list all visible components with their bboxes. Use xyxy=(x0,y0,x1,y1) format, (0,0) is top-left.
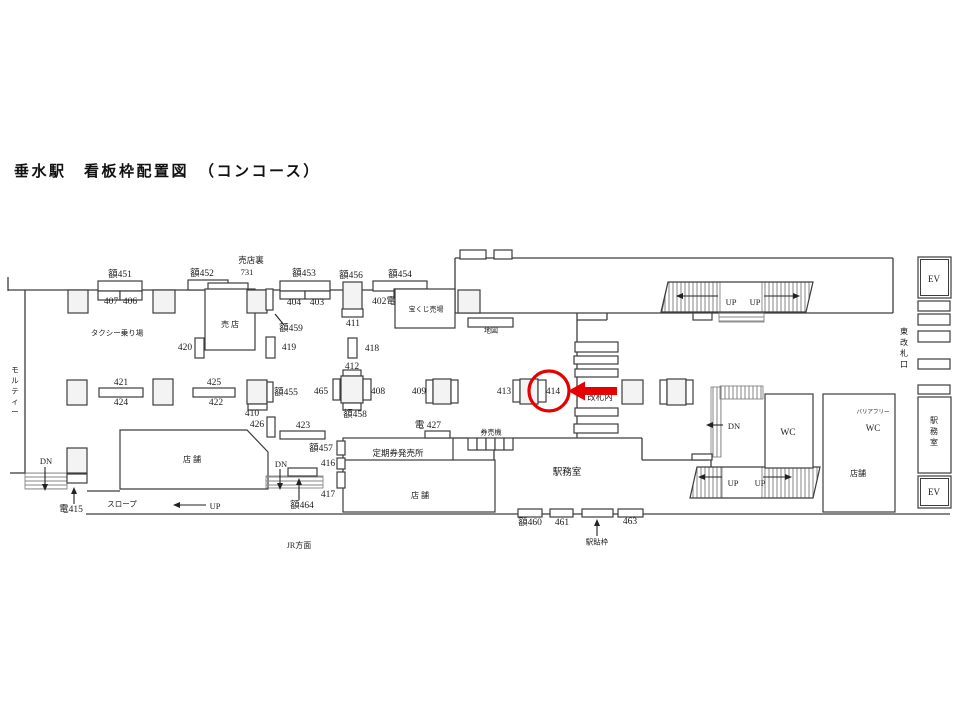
pillar-mid-2 xyxy=(153,379,173,405)
frame-453 xyxy=(280,281,330,291)
direction-arrow-head xyxy=(173,502,180,508)
area-label: DN xyxy=(275,459,287,469)
stair-bar-4 xyxy=(575,408,618,416)
area-label: 410 xyxy=(245,409,260,419)
area-label: JR方面 xyxy=(287,540,311,550)
stair-bar-3 xyxy=(575,369,618,377)
gate-bar-4 xyxy=(918,359,950,369)
area-label: 424 xyxy=(114,398,129,408)
area-label: DN xyxy=(728,421,740,431)
under-band-tab xyxy=(693,313,712,320)
area-label: 電 427 xyxy=(415,420,441,431)
shop-center xyxy=(343,460,495,512)
area-label: 改 xyxy=(900,337,908,347)
stairs-bottom-hatch-right xyxy=(762,467,820,498)
frame-460 xyxy=(518,509,542,517)
frame-east-right xyxy=(686,380,693,404)
area-label: 412 xyxy=(345,362,360,372)
area-label: 店舗 xyxy=(850,468,866,478)
gate-bar-5 xyxy=(918,385,950,394)
area-label: 426 xyxy=(250,420,265,430)
wall-pillar-1 xyxy=(68,290,88,313)
area-label: UP xyxy=(210,501,221,511)
frame-421 xyxy=(99,388,143,397)
frame-poster xyxy=(582,509,613,517)
area-label: タクシー乗り場 xyxy=(91,328,144,338)
frame-465 xyxy=(333,379,340,400)
area-label: スロープ xyxy=(107,500,137,509)
hatch-dn-strip-right xyxy=(711,387,721,457)
panel-455 xyxy=(267,382,273,402)
area-label: 414 xyxy=(546,387,561,397)
frame-459 xyxy=(266,289,273,310)
area-label: ル xyxy=(11,376,19,385)
area-label: 406 xyxy=(123,297,138,307)
frame-423 xyxy=(280,431,325,439)
area-label: EV xyxy=(928,274,940,284)
station-floorplan-diagram: 額451407406額452売店裏731額453404403額456411額45… xyxy=(0,0,960,720)
frame-416 xyxy=(337,458,345,469)
area-label: 463 xyxy=(623,517,638,527)
area-label: バリアフリー xyxy=(856,408,889,415)
area-label: EV xyxy=(928,487,940,497)
area-label: 額464 xyxy=(290,499,314,511)
area-label: 額460 xyxy=(518,516,542,528)
area-label: 416 xyxy=(321,459,336,469)
pillar-mid-8 xyxy=(667,379,686,405)
area-label: WC xyxy=(866,423,881,433)
frame-463 xyxy=(618,509,643,517)
frame-418 xyxy=(348,338,357,358)
stairs-bottom-hatch-left xyxy=(690,467,722,498)
direction-arrow-head xyxy=(594,519,600,526)
area-label: 額451 xyxy=(108,268,132,280)
area-label: 420 xyxy=(178,343,193,353)
direction-arrow-head xyxy=(71,487,77,494)
area-label: 額454 xyxy=(388,268,412,280)
gate-bar-1 xyxy=(918,301,950,311)
area-label: 418 xyxy=(365,344,380,354)
frame-427 xyxy=(425,431,450,438)
area-label: 419 xyxy=(282,343,297,353)
frame-451 xyxy=(98,281,142,291)
area-label: 額452 xyxy=(190,267,214,279)
stair-bar-5 xyxy=(574,424,618,433)
frame-458 xyxy=(343,403,361,410)
area-label: ー xyxy=(11,408,19,417)
area-label: UP xyxy=(728,478,739,488)
area-label: 店 舗 xyxy=(411,490,429,500)
area-label: WC xyxy=(780,428,795,438)
area-label: 売店裏 xyxy=(238,255,264,265)
gate-bar-3 xyxy=(918,331,950,342)
stairs-top-hatch-right xyxy=(762,282,813,312)
area-label: DN xyxy=(40,456,52,466)
area-label: 407 xyxy=(104,297,119,307)
area-label: 駅貼枠 xyxy=(586,537,609,547)
area-label: 宝くじ売場 xyxy=(409,305,444,314)
area-label: 731 xyxy=(241,267,254,277)
area-label: 421 xyxy=(114,378,129,388)
frame-414 xyxy=(538,380,546,402)
ticket-machine-2 xyxy=(477,438,486,450)
wall-pillar-3 xyxy=(458,290,480,313)
frame-411 xyxy=(342,309,363,317)
frame-east-left xyxy=(660,380,667,404)
area-label: 務 xyxy=(930,426,938,436)
pillar-409 xyxy=(433,379,451,404)
area-label: 404 xyxy=(287,298,302,308)
area-label: 額453 xyxy=(292,267,316,279)
ticket-machine-1 xyxy=(468,438,477,450)
frame-417 xyxy=(337,472,345,488)
frame-413 xyxy=(513,380,520,402)
direction-arrow-head xyxy=(706,422,713,428)
mid-right-tab xyxy=(692,454,712,460)
area-label: 408 xyxy=(371,387,386,397)
area-label: 465 xyxy=(314,387,329,397)
area-label: 定期券発売所 xyxy=(372,448,424,458)
area-label: 電415 xyxy=(59,504,83,515)
area-label: UP xyxy=(726,297,737,307)
area-label: モ xyxy=(11,366,19,375)
hatch-stairs-under-band xyxy=(719,313,764,322)
area-label: 413 xyxy=(497,387,512,397)
frame-415 xyxy=(67,474,87,483)
area-label: 402電 xyxy=(372,296,396,307)
area-label: 額456 xyxy=(339,269,363,281)
kiosk-pillar xyxy=(247,290,267,313)
overpass-tab-2 xyxy=(494,250,512,259)
area-label: 425 xyxy=(207,378,222,388)
stair-bar-1 xyxy=(575,342,618,352)
gate-bar-2 xyxy=(918,314,950,325)
pillar-mid-1 xyxy=(67,380,87,405)
area-label: 額455 xyxy=(274,386,298,398)
frame-409-right xyxy=(451,380,458,403)
area-label: 409 xyxy=(412,387,427,397)
area-label: 口 xyxy=(900,360,908,369)
area-label: 額457 xyxy=(309,442,333,454)
ticket-machine-4 xyxy=(495,438,504,450)
area-label: UP xyxy=(755,478,766,488)
area-label: 札 xyxy=(900,348,908,358)
area-label: 東 xyxy=(900,326,908,336)
area-label: 422 xyxy=(209,398,224,408)
stairs-top-hatch-left xyxy=(662,282,720,312)
area-label: 461 xyxy=(555,518,570,528)
frame-457 xyxy=(337,441,345,455)
overpass-tab-1 xyxy=(460,250,486,259)
frame-464 xyxy=(288,468,317,476)
area-label: UP xyxy=(750,297,761,307)
frame-420 xyxy=(195,338,204,358)
pillar-mid-7 xyxy=(622,380,643,404)
area-label: テ xyxy=(11,387,19,396)
area-label: 駅 xyxy=(930,416,938,425)
frame-409-left xyxy=(426,380,433,403)
area-label: 423 xyxy=(296,421,311,431)
area-label: 403 xyxy=(310,298,325,308)
area-label: 券売機 xyxy=(481,428,502,437)
area-label: 室 xyxy=(930,437,938,447)
pillar-bottom-left xyxy=(67,448,87,473)
area-label: 417 xyxy=(321,490,336,500)
area-label: 店 舗 xyxy=(183,454,201,464)
area-label: 411 xyxy=(346,319,360,329)
hatch-dn-band-right xyxy=(720,386,763,399)
wall-pillar-2 xyxy=(153,290,175,313)
frame-408 xyxy=(363,379,371,400)
frame-419 xyxy=(266,337,275,358)
pillar-412 xyxy=(341,376,363,403)
area-label: 額458 xyxy=(343,408,367,420)
area-label: 売 店 xyxy=(221,319,239,329)
stair-bar-2 xyxy=(574,356,618,364)
frame-425 xyxy=(193,388,235,397)
area-label: 地図 xyxy=(484,326,498,335)
frame-461 xyxy=(550,509,573,517)
area-label: ィ xyxy=(11,397,19,406)
area-label: 駅務室 xyxy=(553,466,582,478)
frame-426 xyxy=(267,417,275,437)
pillar-456 xyxy=(343,282,362,310)
hatch-dn-ramp-center xyxy=(266,476,323,488)
pillar-455 xyxy=(247,380,267,404)
ticket-machine-5 xyxy=(504,438,513,450)
ticket-machine-3 xyxy=(486,438,495,450)
